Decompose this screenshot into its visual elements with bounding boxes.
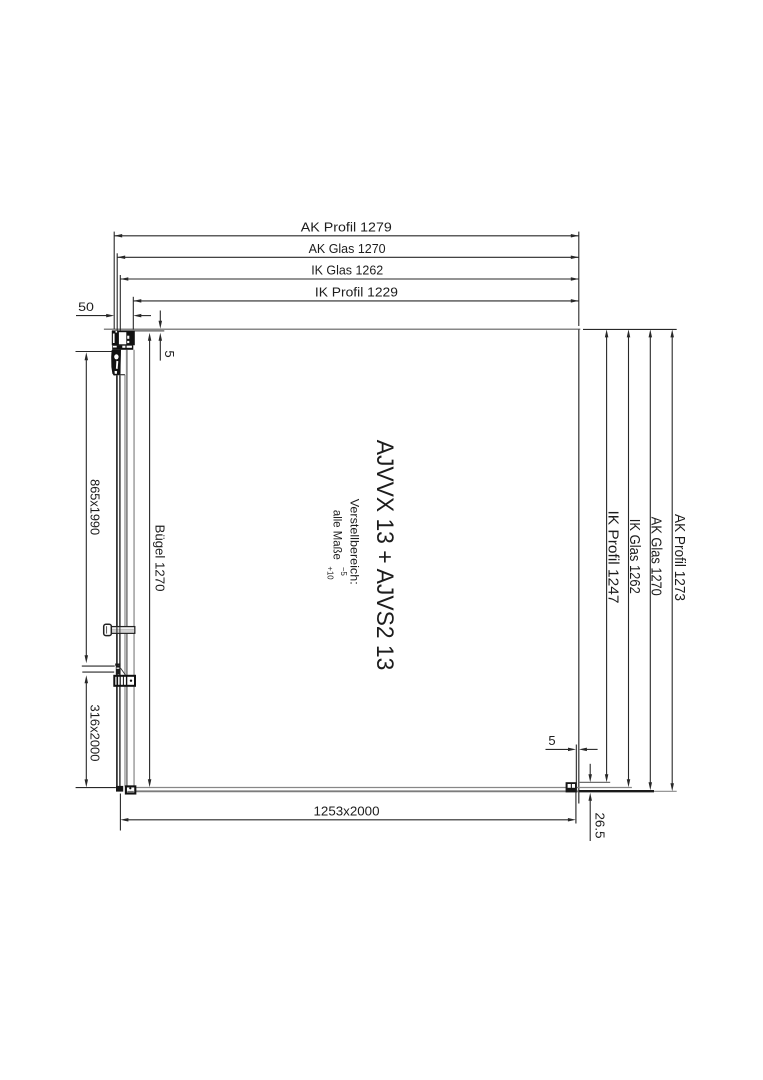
svg-text:AJVVX 13 + AJVS2 13: AJVVX 13 + AJVS2 13 [371, 440, 398, 671]
svg-text:AK Glas 1270: AK Glas 1270 [648, 517, 664, 596]
svg-text:5: 5 [162, 350, 177, 357]
svg-text:50: 50 [78, 300, 94, 314]
svg-text:AK Profil 1279: AK Profil 1279 [301, 219, 392, 234]
svg-text:Verstellbereich:: Verstellbereich: [348, 499, 361, 585]
svg-text:IK Profil 1229: IK Profil 1229 [315, 285, 398, 300]
svg-text:865x1990: 865x1990 [87, 479, 102, 535]
svg-text:AK Profil 1273: AK Profil 1273 [671, 514, 687, 601]
svg-text:IK Glas 1262: IK Glas 1262 [626, 519, 642, 594]
svg-text:26.5: 26.5 [592, 813, 607, 839]
svg-text:316x2000: 316x2000 [87, 705, 102, 762]
svg-text:Bügel 1270: Bügel 1270 [153, 525, 168, 592]
svg-text:IK Profil 1247: IK Profil 1247 [604, 511, 620, 604]
svg-text:AK Glas 1270: AK Glas 1270 [309, 241, 386, 256]
svg-text:1253x2000: 1253x2000 [314, 804, 380, 819]
svg-text:IK Glas 1262: IK Glas 1262 [311, 263, 383, 278]
svg-text:5: 5 [548, 733, 555, 748]
